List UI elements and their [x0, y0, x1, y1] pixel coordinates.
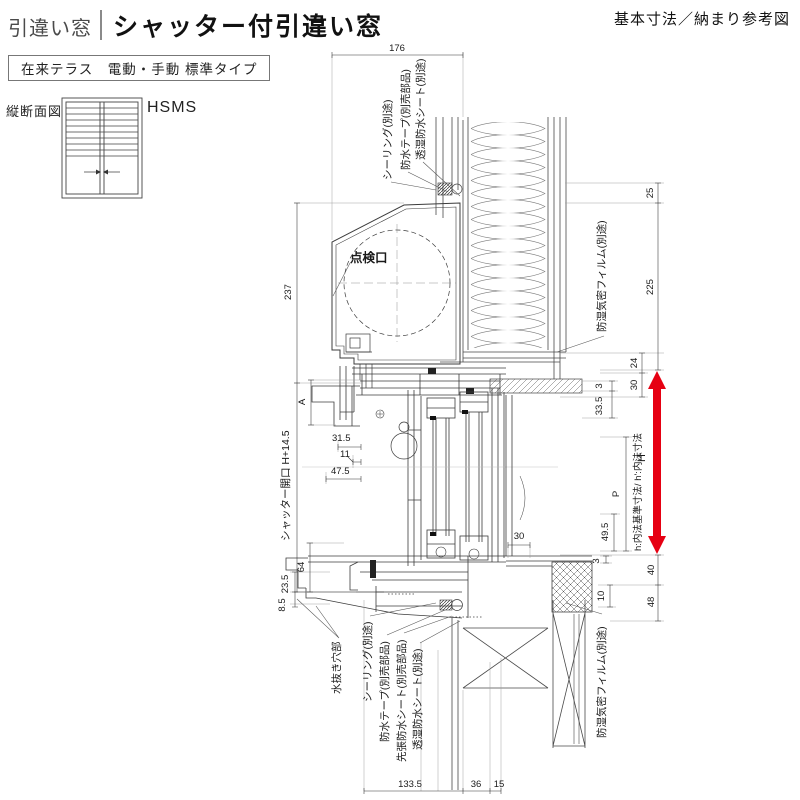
dim-237: 237 [283, 284, 294, 300]
callout-shutter-opening: シャッター開口 H+14.5 [280, 430, 292, 541]
dim-225: 225 [645, 279, 656, 295]
callout-sheet-bottom: 透湿防水シート(別途) [411, 649, 424, 751]
head-casing-board [490, 379, 582, 393]
dim-24: 24 [629, 358, 640, 369]
dim-133-5: 133.5 [398, 779, 422, 790]
sealing-block-bottom [440, 600, 452, 610]
dim-15: 15 [494, 779, 505, 790]
dim-P: P [611, 491, 622, 497]
wall-bottom-section [452, 600, 585, 790]
dim-23-5: 23.5 [280, 575, 291, 594]
shutter-guide-bracket [312, 366, 360, 426]
inspection-port-label: 点検口 [350, 250, 388, 265]
shutter-box [332, 203, 460, 388]
window-head-frame [352, 368, 506, 395]
dim-36: 36 [471, 779, 482, 790]
wall-top-section [436, 117, 582, 393]
drawing-page: { "header": { "category_label": "引違い窓", … [0, 0, 800, 800]
dim-11: 11 [340, 449, 350, 460]
cross-section-drawing: 176 点検口 31.5 11 47.5 30 133.5 36 15 237 … [0, 0, 800, 800]
callout-tape-top: 防水テープ(別売部品) [399, 69, 412, 170]
dim-49-5: 49.5 [600, 523, 611, 542]
dim-33-5: 33.5 [594, 397, 605, 416]
shutter-slat-lines [66, 108, 138, 156]
callout-tape-bottom: 防水テープ(別売部品) [378, 641, 391, 742]
operator-handle [391, 433, 417, 459]
dim-48: 48 [646, 597, 657, 608]
sill-assembly [286, 556, 592, 618]
window-thumbnail [62, 98, 142, 198]
callout-sealing-bottom: シーリング(別途) [361, 622, 374, 703]
dim-25: 25 [645, 188, 656, 199]
insulation-coils [468, 122, 548, 348]
callout-film-bottom: 防湿気密フィルム(別途) [595, 626, 608, 738]
dim-A: A [297, 398, 308, 405]
red-height-arrow [648, 371, 666, 554]
dim-8-5: 8.5 [277, 598, 288, 611]
sealing-block-top [438, 183, 452, 195]
callout-drain: 水抜き穴部 [330, 642, 343, 695]
callout-film-top: 防湿気密フィルム(別途) [595, 220, 608, 332]
dim-3-bottom: 3 [591, 558, 602, 563]
callout-inner-dim-note: h:内法基準寸法/ h':内法寸法 [632, 433, 644, 551]
sash-arrows [84, 170, 120, 175]
dim-40: 40 [646, 565, 657, 576]
dim-176: 176 [389, 43, 405, 54]
height-arrow-shape [648, 371, 666, 554]
callout-sealing-top: シーリング(別途) [381, 100, 394, 181]
callout-sheet-top: 透湿防水シート(別途) [414, 59, 427, 161]
floor-framing-block [552, 562, 592, 612]
dim-64: 64 [296, 562, 307, 573]
dim-30-interior: 30 [514, 531, 525, 542]
callout-presheet-bottom: 先張防水シート(別売部品) [395, 640, 408, 763]
dim-10: 10 [596, 591, 607, 602]
dim-31-5: 31.5 [332, 433, 351, 444]
dim-30: 30 [629, 380, 640, 391]
dim-47-5: 47.5 [331, 466, 350, 477]
dim-3-top: 3 [594, 383, 605, 388]
